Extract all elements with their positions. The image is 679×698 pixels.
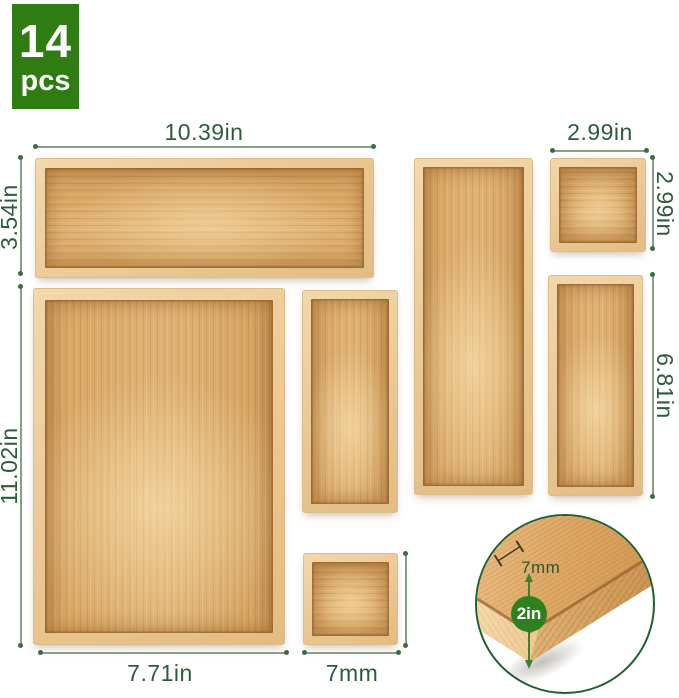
depth-badge: 2in <box>511 596 547 632</box>
box-interior <box>311 299 389 504</box>
organizer-box-large-tray <box>33 288 285 645</box>
dim-label-top-tray-width: 10.39in <box>124 118 284 146</box>
dim-line-large-tray-width <box>40 652 287 654</box>
box-interior <box>559 167 637 243</box>
box-interior <box>557 284 634 487</box>
box-interior <box>45 300 273 633</box>
organizer-box-small-rect <box>302 290 398 513</box>
badge-unit: pcs <box>21 67 71 96</box>
box-interior <box>312 562 389 636</box>
depth-badge-label: 2in <box>517 604 542 624</box>
dim-line-bottom-square-width <box>304 652 399 654</box>
corner-detail-inset: 7mm 2in <box>475 514 655 694</box>
product-dimension-diagram: 14 pcs 10.39in 3.54in 2.99in 2.99in 6.81… <box>0 0 679 698</box>
box-interior <box>45 168 364 268</box>
dim-line-small-square-height <box>652 157 654 249</box>
pcs-count-badge: 14 pcs <box>12 4 79 109</box>
organizer-box-tall-narrow <box>414 158 533 495</box>
box-interior <box>423 167 524 486</box>
organizer-box-small-square-bottom <box>303 553 398 645</box>
organizer-box-small-square-top <box>550 158 646 252</box>
dim-line-small-square-width <box>552 150 647 152</box>
dim-line-bottom-square-height <box>405 553 407 646</box>
dim-label-medium-tall-height: 6.81in <box>651 306 679 466</box>
dim-line-large-tray-height <box>20 286 22 646</box>
dim-line-top-tray-height <box>20 157 22 274</box>
dim-line-medium-tall-height <box>652 274 654 497</box>
badge-count: 14 <box>19 18 72 64</box>
organizer-box-medium-tall <box>548 275 643 496</box>
dim-line-top-tray-width <box>35 146 374 148</box>
organizer-box-long-low <box>35 158 374 278</box>
dim-label-small-square-height: 2.99in <box>651 124 679 284</box>
dim-label-bottom-square-width: 7mm <box>272 659 432 687</box>
dim-label-large-tray-width: 7.71in <box>80 659 240 687</box>
